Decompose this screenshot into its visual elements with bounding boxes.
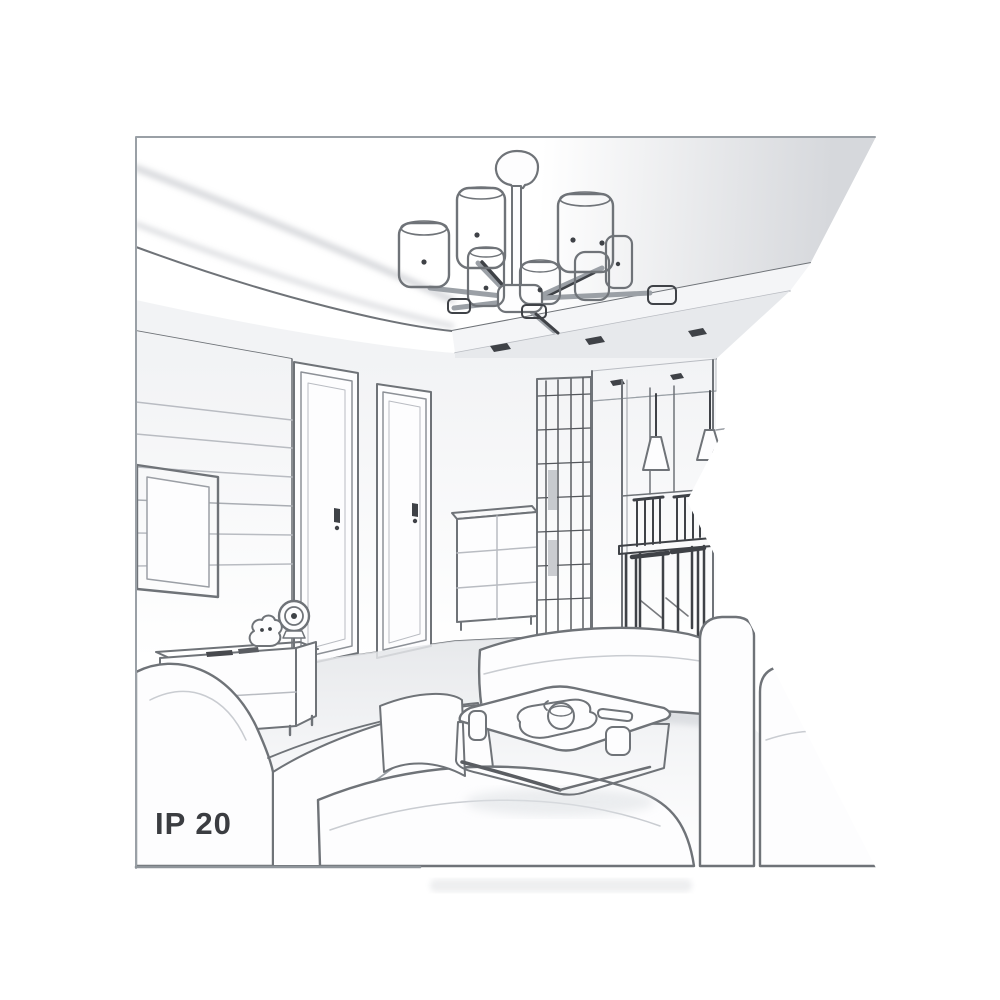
interior-door-right	[377, 384, 431, 658]
door-handle-icon	[334, 508, 340, 523]
ip-rating-label: IP 20	[155, 806, 232, 841]
cup	[469, 711, 486, 740]
room-illustration: IP 20	[0, 0, 1000, 1000]
drawer-chest	[452, 506, 537, 630]
right-sofa-armrests	[700, 617, 876, 866]
figure-canvas: IP 20	[0, 0, 1000, 1000]
cup	[606, 727, 630, 755]
image-drop-shadow	[430, 879, 692, 892]
door-handle-icon	[412, 503, 418, 517]
